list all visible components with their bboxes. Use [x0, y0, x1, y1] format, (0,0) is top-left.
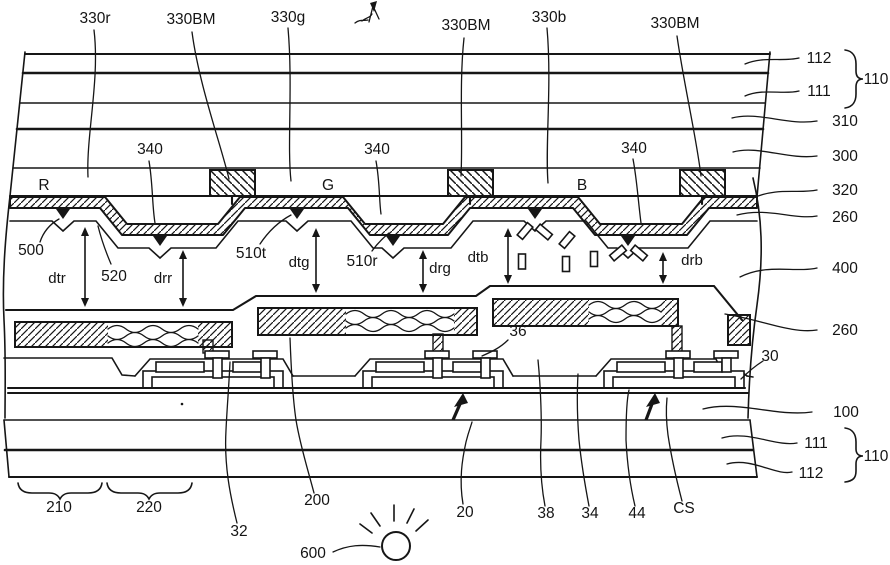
protrusion-triangle [56, 209, 70, 219]
label-340-3: 340 [621, 140, 647, 157]
tft-contact-cap [253, 351, 277, 358]
label-cf-green: G [322, 177, 334, 194]
tft-unit [135, 351, 293, 388]
leader-310 [732, 116, 817, 122]
pixel-electrode-red [15, 322, 232, 347]
tft-gate-right [453, 362, 481, 372]
label-38: 38 [537, 505, 554, 522]
right-edge-bottom-stack [750, 420, 757, 477]
gap-arrow-dtr [81, 227, 89, 307]
pixel-electrode-blue [493, 299, 678, 326]
leader-600 [333, 545, 380, 552]
tft-gate-right [233, 362, 261, 372]
tft-contact-stem [261, 358, 270, 378]
lc-molecule [536, 224, 553, 240]
label-dtb: dtb [468, 249, 489, 266]
scribble-mark [355, 1, 379, 23]
label-110-bottom: 110 [864, 448, 889, 465]
brace-220 [107, 483, 192, 499]
lc-molecule [591, 252, 598, 267]
overcoat-band [10, 197, 757, 235]
label-34: 34 [581, 505, 599, 522]
contact-via [433, 334, 443, 352]
leader-38 [538, 360, 545, 506]
tft-unit [596, 351, 747, 388]
edge-electrode-block [728, 315, 750, 345]
gap-arrow-dtg [312, 228, 320, 293]
label-330bm-2: 330BM [441, 17, 490, 34]
label-111-top: 111 [807, 83, 831, 100]
leader-112-top [745, 58, 799, 64]
leader-lines [40, 28, 817, 552]
left-break-edge [3, 52, 25, 418]
label-112-top: 112 [807, 50, 832, 67]
tft-contact-stem [213, 358, 222, 378]
lc-molecule [517, 223, 533, 240]
light-source-icon [382, 532, 410, 560]
tft-gate-left [617, 362, 665, 372]
label-drb: drb [681, 252, 703, 269]
label-510t: 510t [236, 245, 267, 262]
leader-200 [290, 338, 314, 493]
lc-molecule [559, 232, 575, 249]
lower-array-assembly [4, 286, 753, 420]
protrusion-triangle [528, 209, 542, 219]
label-112-bottom: 112 [799, 465, 824, 482]
protrusion-triangle [153, 236, 167, 246]
leader-260-upper [737, 212, 817, 216]
speck [181, 403, 184, 406]
label-330bm-3: 330BM [650, 15, 699, 32]
black-matrix-segment [448, 170, 493, 196]
gap-arrow-dtb [504, 228, 512, 284]
label-330r: 330r [79, 10, 110, 27]
label-32: 32 [230, 523, 247, 540]
tft-contact-cap [714, 351, 738, 358]
gap-arrow-drg [419, 250, 427, 293]
label-cf-red: R [38, 177, 49, 194]
label-340-2: 340 [364, 141, 390, 158]
backlight-arrows [453, 393, 660, 420]
leader-320 [753, 190, 817, 198]
label-36: 36 [509, 323, 526, 340]
label-cf-blue: B [577, 177, 587, 194]
leader-340-1 [149, 161, 155, 223]
label-600: 600 [300, 545, 326, 562]
patent-figure-page: 330r 330BM 330g 330BM 330b 330BM 340 340… [0, 0, 890, 565]
figure-canvas: 330r 330BM 330g 330BM 330b 330BM 340 340… [0, 0, 890, 565]
lc-molecule [519, 254, 526, 269]
label-111-bottom: 111 [804, 435, 828, 452]
leader-330g [288, 28, 291, 181]
label-cs: CS [673, 500, 695, 517]
backlight-arrow [646, 393, 660, 420]
leader-44 [626, 390, 635, 506]
label-400: 400 [832, 260, 858, 277]
leader-500 [40, 219, 59, 242]
label-220: 220 [136, 499, 162, 516]
label-500: 500 [18, 242, 44, 259]
leader-330b [547, 28, 549, 183]
left-edge-bottom-stack [4, 420, 9, 477]
tft-gate-left [376, 362, 424, 372]
protrusion-triangle [621, 236, 635, 246]
black-matrix-segment [210, 170, 255, 196]
protrusion-triangle [386, 236, 400, 246]
backlight-arrow [453, 393, 468, 420]
leader-330bm-3 [677, 36, 701, 176]
leader-111-bottom [722, 436, 797, 444]
label-330b: 330b [532, 9, 566, 26]
label-20: 20 [456, 504, 474, 521]
label-110-top: 110 [864, 71, 889, 88]
leader-112-bottom [727, 462, 792, 472]
light-rays [360, 505, 428, 533]
tft-contact-stem [481, 358, 490, 378]
gap-arrow-drb [659, 252, 667, 284]
label-330bm-1: 330BM [166, 11, 215, 28]
light-source [360, 505, 428, 560]
leader-300 [733, 150, 817, 157]
tft-contact-cap [666, 351, 690, 358]
leader-400 [740, 268, 817, 277]
gap-arrow-drr [179, 250, 187, 307]
protrusion-triangle [290, 209, 304, 219]
label-510r: 510r [346, 253, 377, 270]
leader-20 [461, 422, 472, 504]
tft-gate-left [156, 362, 204, 372]
label-260-upper: 260 [832, 209, 858, 226]
tft-contact-stem [674, 358, 683, 378]
brace-210 [18, 483, 102, 499]
tft-gate-right [694, 362, 722, 372]
tft-contact-cap [205, 351, 229, 358]
brace-110-bottom [845, 428, 863, 482]
leader-111-top [745, 91, 799, 96]
pixel-electrode-green [258, 308, 477, 335]
label-100: 100 [833, 404, 859, 421]
contact-via [672, 326, 682, 352]
leader-330bm-2 [461, 38, 464, 176]
lower-polarizer-stack [4, 420, 757, 477]
tft-contact-stem [433, 358, 442, 378]
label-330g: 330g [271, 9, 305, 26]
label-300: 300 [832, 148, 858, 165]
tft-contact-stem [722, 358, 731, 372]
leader-100 [703, 406, 812, 413]
label-dtg: dtg [289, 254, 310, 271]
black-matrix-segment [680, 170, 725, 196]
label-200: 200 [304, 492, 330, 509]
tft-contact-cap [425, 351, 449, 358]
leader-510t [260, 215, 291, 244]
label-260-lower: 260 [832, 322, 858, 339]
label-310: 310 [832, 113, 858, 130]
brace-110-top [845, 50, 863, 108]
label-210: 210 [46, 499, 72, 516]
label-320: 320 [832, 182, 858, 199]
leader-340-2 [376, 161, 381, 214]
label-30: 30 [761, 348, 779, 365]
label-dtr: dtr [48, 270, 66, 287]
lc-molecule [563, 257, 570, 272]
label-340-1: 340 [137, 141, 163, 158]
label-520: 520 [101, 268, 127, 285]
label-44: 44 [628, 505, 646, 522]
label-drr: drr [154, 270, 172, 287]
label-drg: drg [429, 260, 451, 277]
tft-unit [355, 351, 513, 388]
right-break-edge [748, 178, 761, 418]
